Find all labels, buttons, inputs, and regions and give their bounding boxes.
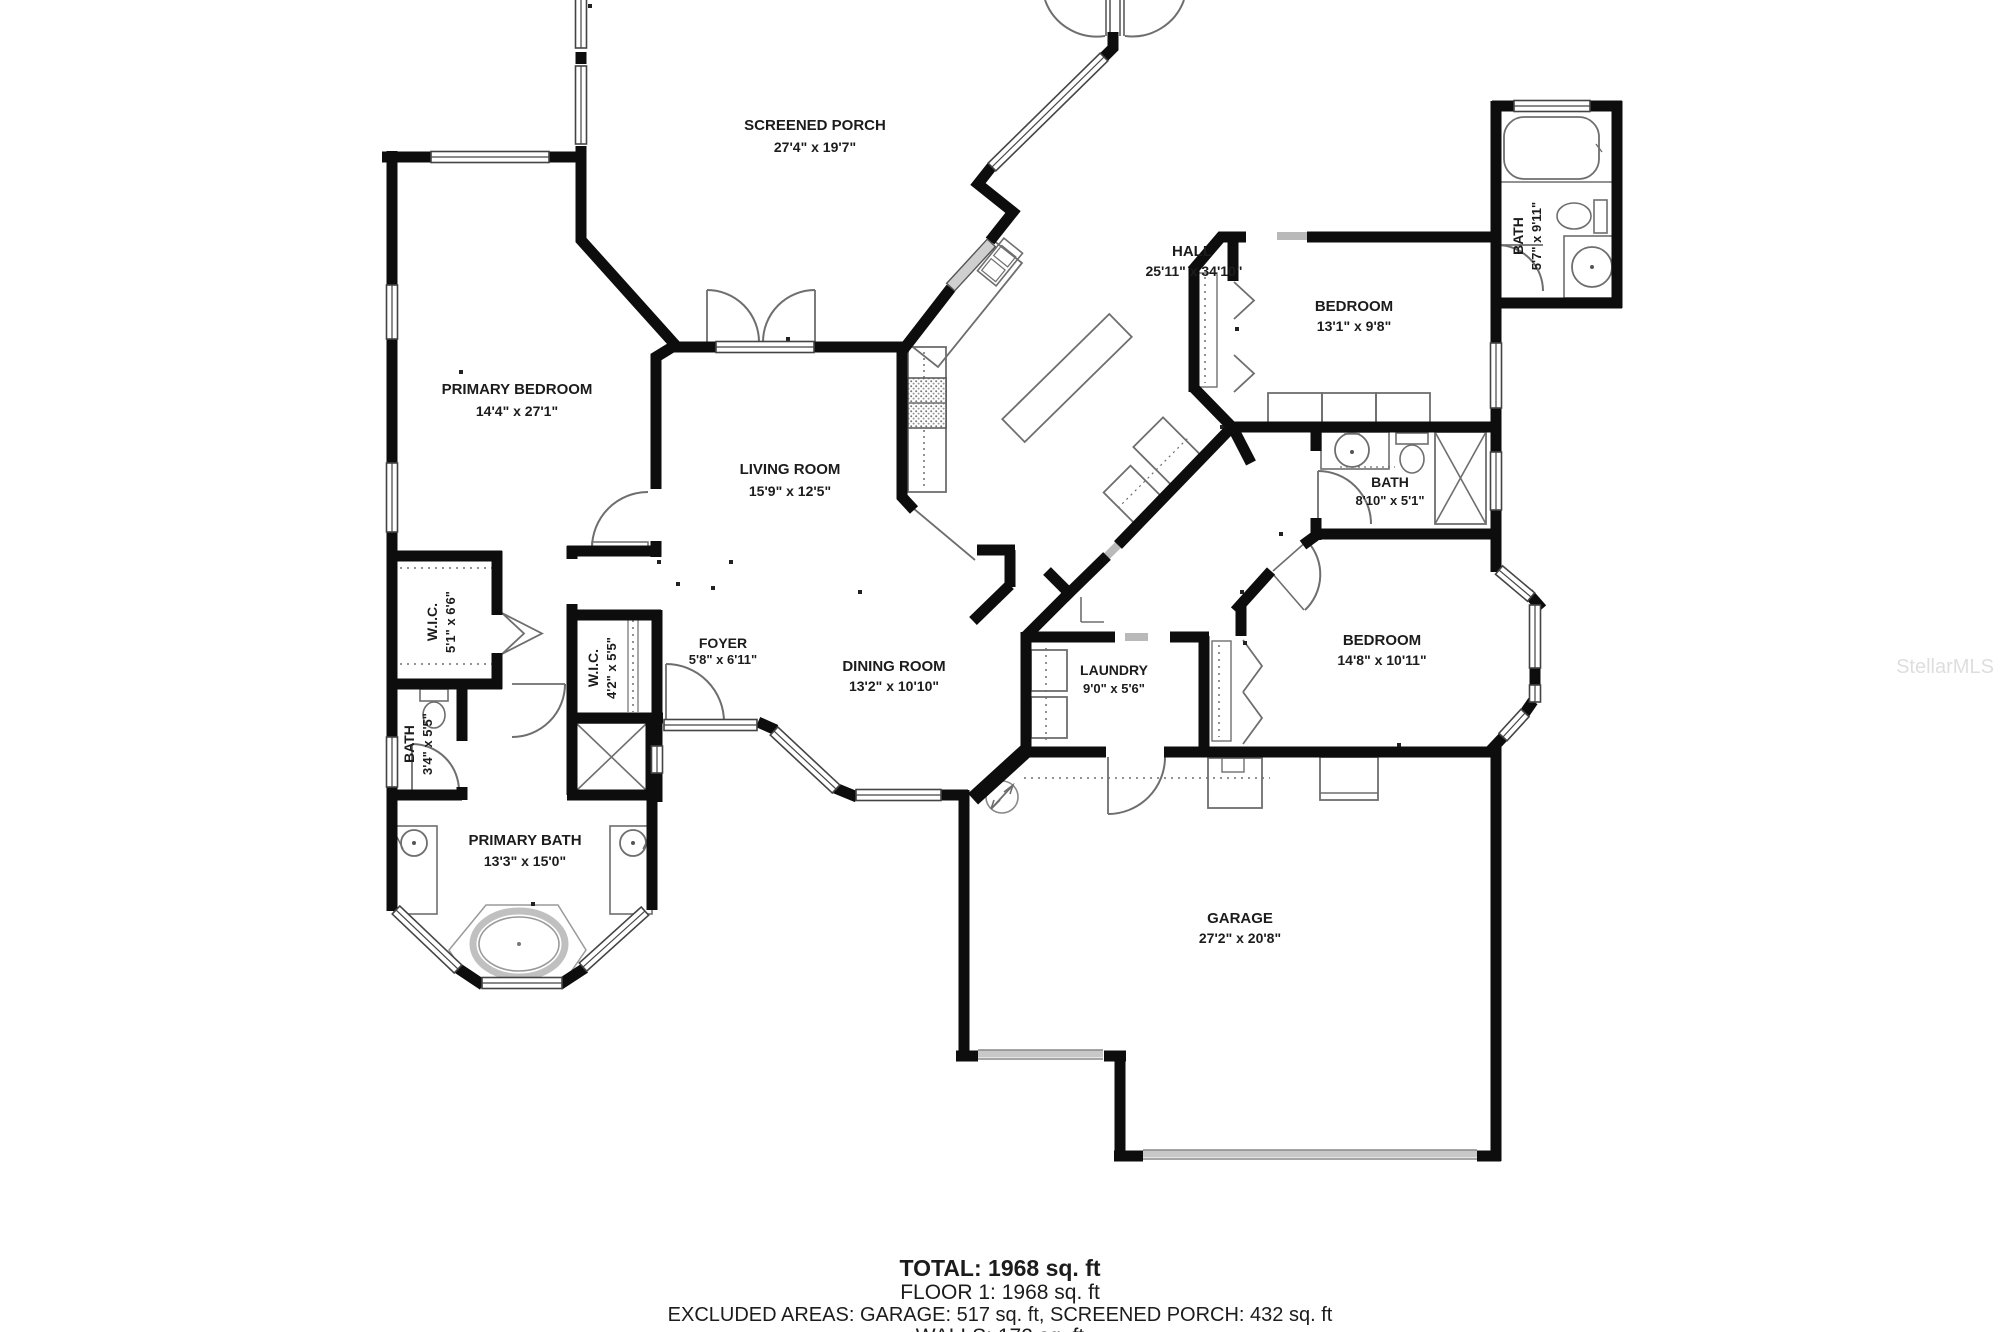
svg-text:PRIMARY BEDROOM: PRIMARY BEDROOM xyxy=(442,381,593,398)
svg-text:BATH: BATH xyxy=(401,725,417,763)
svg-text:9'0" x 5'6": 9'0" x 5'6" xyxy=(1083,681,1145,696)
svg-text:5'7" x 9'11": 5'7" x 9'11" xyxy=(1529,202,1544,270)
svg-text:14'4" x 27'1": 14'4" x 27'1" xyxy=(476,403,558,419)
svg-text:15'9" x 12'5": 15'9" x 12'5" xyxy=(749,483,831,499)
svg-text:PRIMARY BATH: PRIMARY BATH xyxy=(468,832,581,849)
svg-text:4'2" x 5'5": 4'2" x 5'5" xyxy=(604,637,619,699)
svg-text:W.I.C.: W.I.C. xyxy=(424,603,440,641)
svg-text:EXCLUDED AREAS: GARAGE: 517 sq: EXCLUDED AREAS: GARAGE: 517 sq. ft, SCRE… xyxy=(668,1304,1333,1326)
svg-text:SCREENED PORCH: SCREENED PORCH xyxy=(744,117,886,134)
svg-text:FOYER: FOYER xyxy=(699,635,747,651)
svg-text:WALLS: 172 sq. ft: WALLS: 172 sq. ft xyxy=(916,1325,1085,1332)
svg-text:14'8" x 10'11": 14'8" x 10'11" xyxy=(1337,652,1426,668)
svg-text:3'4" x 5'5": 3'4" x 5'5" xyxy=(420,713,435,775)
svg-text:13'3" x 15'0": 13'3" x 15'0" xyxy=(484,853,566,869)
svg-text:BEDROOM: BEDROOM xyxy=(1315,298,1393,315)
svg-text:8'10" x 5'1": 8'10" x 5'1" xyxy=(1355,493,1424,508)
svg-text:GARAGE: GARAGE xyxy=(1207,910,1273,927)
svg-text:27'2" x 20'8": 27'2" x 20'8" xyxy=(1199,930,1281,946)
svg-text:StellarMLS: StellarMLS xyxy=(1896,656,1994,678)
svg-text:BEDROOM: BEDROOM xyxy=(1343,632,1421,649)
svg-text:13'1" x 9'8": 13'1" x 9'8" xyxy=(1317,318,1391,334)
svg-text:25'11" x 34'10": 25'11" x 34'10" xyxy=(1145,263,1242,279)
svg-text:HALL: HALL xyxy=(1172,243,1212,260)
svg-text:W.I.C.: W.I.C. xyxy=(585,649,601,687)
svg-text:LIVING ROOM: LIVING ROOM xyxy=(740,461,841,478)
svg-text:BATH: BATH xyxy=(1510,217,1526,255)
svg-text:DINING ROOM: DINING ROOM xyxy=(842,658,945,675)
svg-text:5'8" x 6'11": 5'8" x 6'11" xyxy=(689,652,757,667)
svg-text:TOTAL: 1968 sq. ft: TOTAL: 1968 sq. ft xyxy=(899,1255,1100,1281)
svg-text:13'2" x 10'10": 13'2" x 10'10" xyxy=(849,678,939,694)
svg-text:BATH: BATH xyxy=(1371,474,1409,490)
svg-text:LAUNDRY: LAUNDRY xyxy=(1080,662,1149,678)
svg-text:27'4" x 19'7": 27'4" x 19'7" xyxy=(774,139,856,155)
svg-text:FLOOR 1: 1968 sq. ft: FLOOR 1: 1968 sq. ft xyxy=(900,1281,1100,1304)
svg-text:5'1" x 6'6": 5'1" x 6'6" xyxy=(443,591,458,653)
